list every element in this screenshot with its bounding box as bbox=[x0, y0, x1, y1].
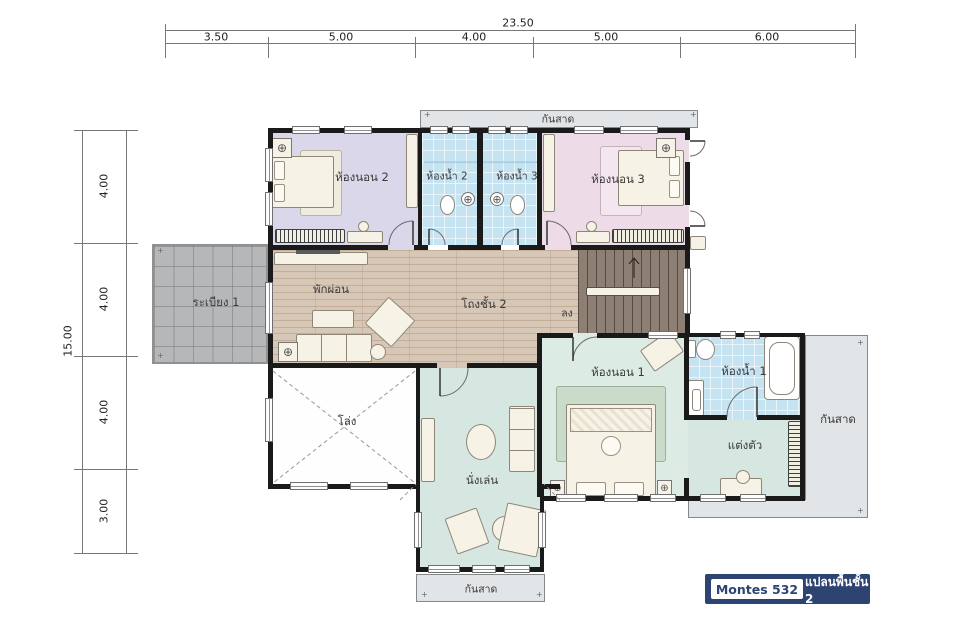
vanity-symbol bbox=[347, 231, 383, 243]
fastener-icon: + bbox=[424, 112, 431, 118]
wall-segment bbox=[537, 128, 542, 245]
plan-title-box: แปลนพื้นชั้น 2 bbox=[805, 574, 869, 604]
wall-segment bbox=[268, 128, 273, 250]
model-name-box: Montes 532 bbox=[711, 579, 803, 599]
dimension-tick bbox=[680, 37, 681, 58]
door-arc bbox=[690, 141, 705, 156]
window-symbol bbox=[265, 398, 273, 442]
room-bathroom3 bbox=[481, 128, 541, 245]
wall-segment bbox=[418, 128, 422, 245]
wall-segment bbox=[414, 245, 428, 250]
bed-symbol bbox=[270, 156, 334, 208]
mirror-symbol bbox=[586, 221, 597, 232]
window-symbol bbox=[650, 494, 676, 502]
side-table-symbol bbox=[370, 344, 386, 360]
mirror-symbol bbox=[358, 221, 369, 232]
window-symbol bbox=[538, 512, 546, 548]
dimension-tick bbox=[268, 37, 269, 58]
window-symbol bbox=[344, 126, 372, 134]
dim-left-seg-2: 4.00 bbox=[98, 287, 111, 312]
label-sitting: นั่งเล่น bbox=[466, 472, 498, 490]
window-symbol bbox=[472, 565, 496, 573]
dimension-tick bbox=[533, 37, 534, 58]
fastener-icon: + bbox=[857, 508, 864, 514]
dimension-tick bbox=[74, 553, 138, 554]
dim-left-seg-1: 4.00 bbox=[98, 174, 111, 199]
label-awning-top: กันสาด bbox=[542, 111, 575, 128]
fastener-icon: + bbox=[157, 353, 164, 359]
awning-right-bottom bbox=[688, 500, 868, 518]
pouf-symbol bbox=[466, 424, 496, 460]
plan-title: แปลนพื้นชั้น 2 bbox=[805, 573, 869, 606]
label-bedroom1: ห้องนอน 1 bbox=[591, 364, 645, 382]
wall-segment bbox=[685, 227, 690, 250]
ac-condenser-symbol bbox=[690, 236, 706, 250]
window-symbol bbox=[504, 565, 530, 573]
wall-segment bbox=[800, 420, 805, 500]
dimension-line-left-total bbox=[82, 130, 83, 553]
window-symbol bbox=[740, 494, 766, 502]
label-bedroom2: ห้องนอน 2 bbox=[335, 169, 389, 187]
window-symbol bbox=[720, 331, 736, 339]
window-symbol bbox=[265, 192, 273, 226]
window-symbol bbox=[292, 126, 320, 134]
window-symbol bbox=[648, 331, 678, 339]
coffee-table-symbol bbox=[312, 310, 354, 328]
dimension-tick bbox=[855, 24, 856, 58]
label-dressing: แต่งตัว bbox=[728, 437, 762, 455]
label-bedroom3: ห้องนอน 3 bbox=[591, 171, 645, 189]
dimension-tick bbox=[74, 243, 138, 244]
ceiling-register-icon: ⊕ bbox=[272, 138, 292, 158]
door-arc bbox=[690, 211, 705, 226]
tall-cabinet-symbol bbox=[421, 418, 435, 482]
wall-segment bbox=[477, 128, 483, 245]
window-symbol bbox=[488, 126, 506, 134]
dimension-tick bbox=[74, 356, 138, 357]
dim-left-seg-4: 3.00 bbox=[98, 499, 111, 524]
fastener-icon: + bbox=[536, 592, 543, 598]
wall-segment bbox=[416, 368, 420, 484]
dimension-line-left-segments bbox=[126, 130, 127, 553]
model-name: Montes 532 bbox=[716, 582, 798, 597]
window-symbol bbox=[683, 268, 691, 314]
window-symbol bbox=[428, 565, 460, 573]
tall-cabinet-symbol bbox=[406, 134, 418, 208]
bathtub-symbol bbox=[764, 336, 800, 400]
floor-plan-canvas: 23.50 3.50 5.00 4.00 5.00 6.00 15.00 4.0… bbox=[0, 0, 980, 635]
fastener-icon: + bbox=[157, 248, 164, 254]
tall-cabinet-symbol bbox=[543, 134, 555, 212]
window-symbol bbox=[574, 126, 604, 134]
toilet-symbol bbox=[440, 195, 455, 215]
ceiling-register-icon: ⊕ bbox=[278, 342, 298, 362]
wall-segment bbox=[684, 478, 689, 501]
dimension-tick bbox=[74, 469, 138, 470]
window-symbol bbox=[430, 126, 448, 134]
ceiling-register-icon: ⊕ bbox=[656, 138, 676, 158]
toilet-symbol bbox=[696, 339, 715, 360]
dim-left-total: 15.00 bbox=[62, 325, 75, 357]
window-symbol bbox=[414, 512, 422, 548]
window-symbol bbox=[452, 126, 470, 134]
window-symbol bbox=[744, 331, 760, 339]
fastener-icon: + bbox=[690, 112, 697, 118]
dim-top-seg-5: 6.00 bbox=[755, 31, 780, 44]
wall-segment bbox=[685, 128, 690, 140]
wall-segment bbox=[757, 415, 805, 420]
fastener-icon: + bbox=[421, 592, 428, 598]
wall-segment bbox=[537, 333, 542, 497]
wall-segment bbox=[519, 245, 545, 250]
label-stairs-down: ลง bbox=[561, 305, 573, 322]
window-symbol bbox=[290, 482, 328, 490]
label-bathroom3: ห้องน้ำ 3 bbox=[496, 168, 537, 185]
wardrobe-symbol bbox=[612, 229, 684, 243]
label-void: โล่ง bbox=[338, 413, 357, 431]
label-bathroom2: ห้องน้ำ 2 bbox=[426, 168, 467, 185]
sink-counter-symbol bbox=[688, 380, 704, 420]
bed-symbol bbox=[566, 404, 656, 500]
tv-symbol bbox=[296, 250, 340, 254]
label-awning-bottom: กันสาด bbox=[465, 581, 498, 598]
wall-segment bbox=[541, 333, 573, 338]
wall-segment bbox=[685, 162, 690, 205]
window-symbol bbox=[510, 126, 528, 134]
wardrobe-symbol bbox=[275, 229, 345, 243]
toilet-symbol bbox=[510, 195, 525, 215]
label-relax: พักผ่อน bbox=[313, 281, 349, 299]
toilet-symbol bbox=[688, 340, 696, 358]
wall-segment bbox=[684, 333, 689, 420]
dim-top-seg-4: 5.00 bbox=[594, 31, 619, 44]
wall-segment bbox=[268, 245, 388, 250]
dim-top-total: 23.50 bbox=[502, 17, 534, 30]
floor-drain-icon: ⊕ bbox=[461, 192, 475, 206]
window-symbol bbox=[556, 494, 586, 502]
dimension-line-top-total bbox=[165, 30, 855, 31]
window-symbol bbox=[350, 482, 388, 490]
fastener-icon: + bbox=[857, 340, 864, 346]
wall-segment bbox=[571, 245, 690, 250]
label-awning-right: กันสาด bbox=[820, 411, 856, 429]
wall-segment bbox=[268, 363, 437, 368]
dim-top-seg-3: 4.00 bbox=[462, 31, 487, 44]
window-symbol bbox=[620, 126, 658, 134]
label-bathroom1: ห้องน้ำ 1 bbox=[721, 363, 766, 381]
wall-segment bbox=[800, 333, 805, 420]
wall-segment bbox=[467, 363, 541, 368]
window-symbol bbox=[604, 494, 638, 502]
label-hall-floor2: โถงชั้น 2 bbox=[461, 296, 506, 314]
window-symbol bbox=[265, 282, 273, 334]
dim-top-seg-1: 3.50 bbox=[204, 31, 229, 44]
mirror-symbol bbox=[736, 470, 750, 484]
dimension-tick bbox=[415, 37, 416, 58]
label-balcony1: ระเบียง 1 bbox=[193, 294, 240, 312]
dim-top-seg-2: 5.00 bbox=[329, 31, 354, 44]
vanity-symbol bbox=[576, 231, 610, 243]
sofa-symbol bbox=[296, 334, 372, 362]
sofa-symbol bbox=[509, 406, 535, 472]
dimension-tick bbox=[165, 24, 166, 58]
wall-segment bbox=[688, 415, 727, 420]
wall-segment bbox=[448, 245, 501, 250]
dimension-tick bbox=[74, 130, 138, 131]
stair-handrail bbox=[586, 287, 660, 296]
floor-drain-icon: ⊕ bbox=[490, 192, 504, 206]
dim-left-seg-3: 4.00 bbox=[98, 400, 111, 425]
room-bathroom2 bbox=[422, 128, 481, 245]
window-symbol bbox=[265, 148, 273, 182]
window-symbol bbox=[700, 494, 726, 502]
